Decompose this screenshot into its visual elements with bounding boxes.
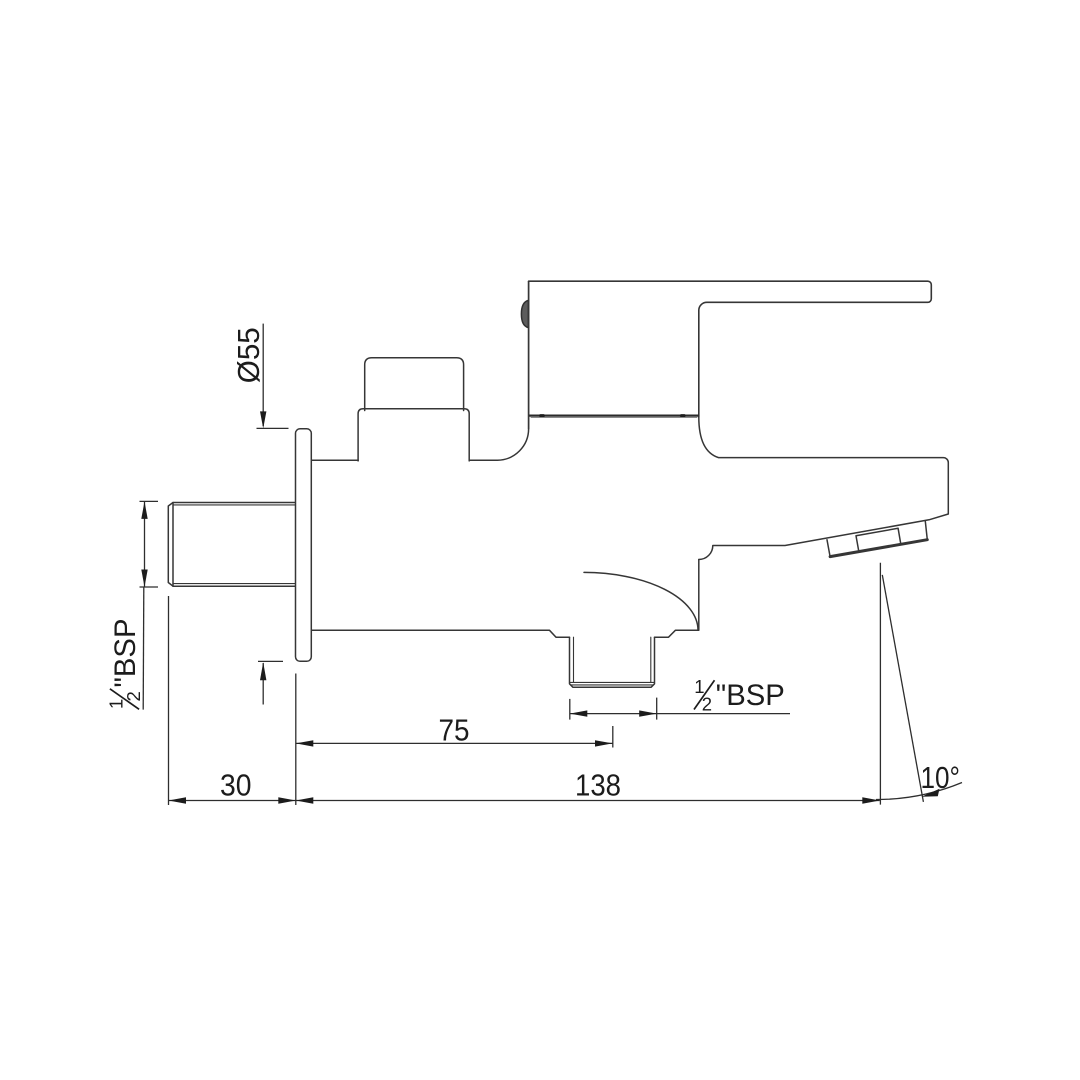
svg-text:2: 2 [123, 691, 144, 701]
svg-text:Ø55: Ø55 [231, 327, 266, 383]
svg-text:30: 30 [220, 768, 252, 803]
svg-text:2: 2 [702, 693, 712, 714]
svg-text:10°: 10° [921, 760, 961, 795]
svg-text:"BSP: "BSP [109, 619, 142, 688]
svg-text:138: 138 [575, 767, 621, 802]
svg-text:"BSP: "BSP [716, 679, 785, 712]
svg-text:75: 75 [439, 712, 470, 747]
